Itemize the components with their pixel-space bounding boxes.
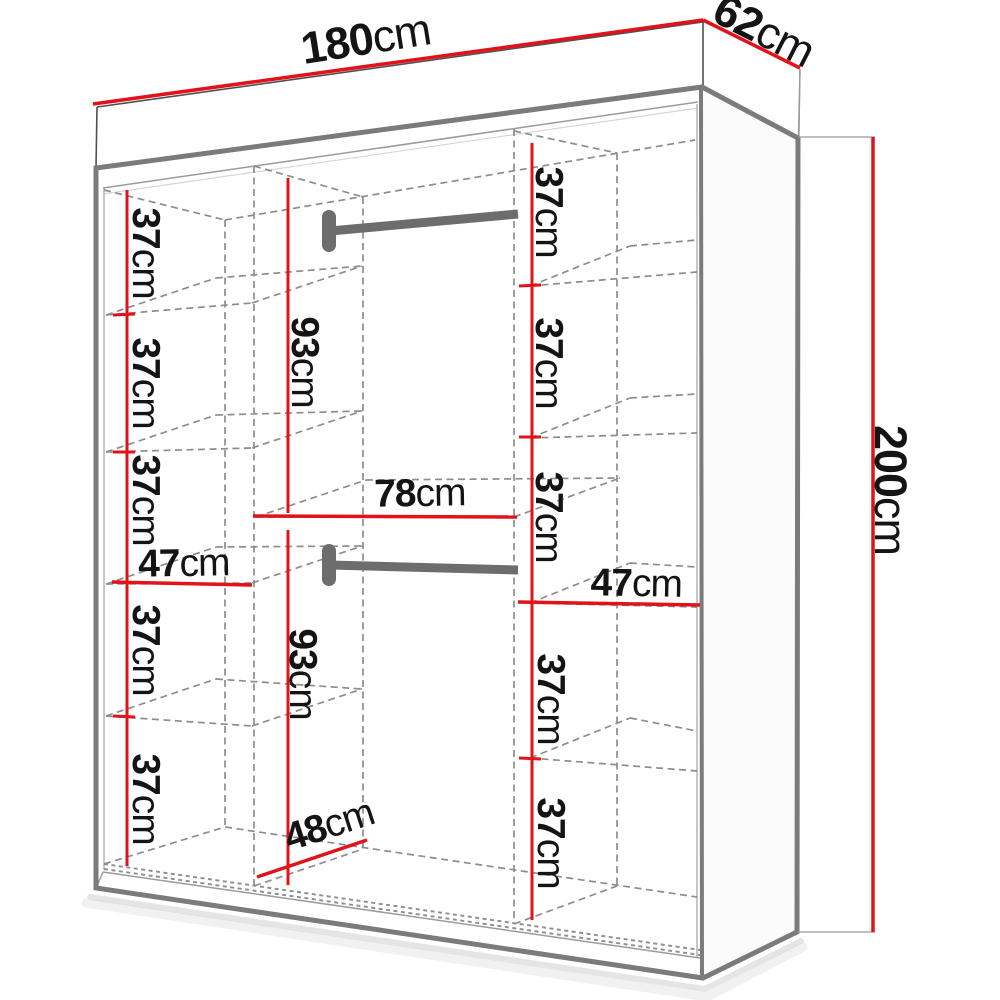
label-left-shelf-37-5: 37cm (125, 753, 168, 844)
label-left-width-47: 47cm (138, 541, 230, 586)
label-upper-hanging-93: 93cm (284, 316, 327, 407)
label-height-200: 200cm (866, 425, 917, 555)
wardrobe-dimension-diagram: 180cm 62cm 200cm 37cm 37cm 37cm 37cm 37c… (0, 0, 1000, 1000)
label-right-shelf-37-1: 37cm (528, 166, 571, 257)
side-panel (703, 87, 798, 978)
diagram-canvas: 180cm 62cm 200cm 37cm 37cm 37cm 37cm 37c… (0, 0, 1000, 1000)
middle-width-dimension-line (253, 516, 517, 517)
label-right-shelf-37-2: 37cm (528, 317, 571, 408)
label-right-shelf-37-5: 37cm (530, 797, 573, 888)
label-lower-hanging-93: 93cm (282, 628, 325, 719)
label-left-shelf-37-1: 37cm (125, 207, 168, 298)
front-right-edge (701, 87, 702, 978)
label-right-shelf-37-4: 37cm (530, 653, 573, 744)
label-left-shelf-37-3: 37cm (125, 454, 168, 545)
label-left-shelf-37-2: 37cm (125, 337, 168, 428)
label-left-shelf-37-4: 37cm (125, 604, 168, 695)
label-right-shelf-37-3: 37cm (528, 471, 571, 562)
label-middle-width-78: 78cm (374, 471, 466, 516)
label-right-width-47: 47cm (590, 561, 682, 606)
